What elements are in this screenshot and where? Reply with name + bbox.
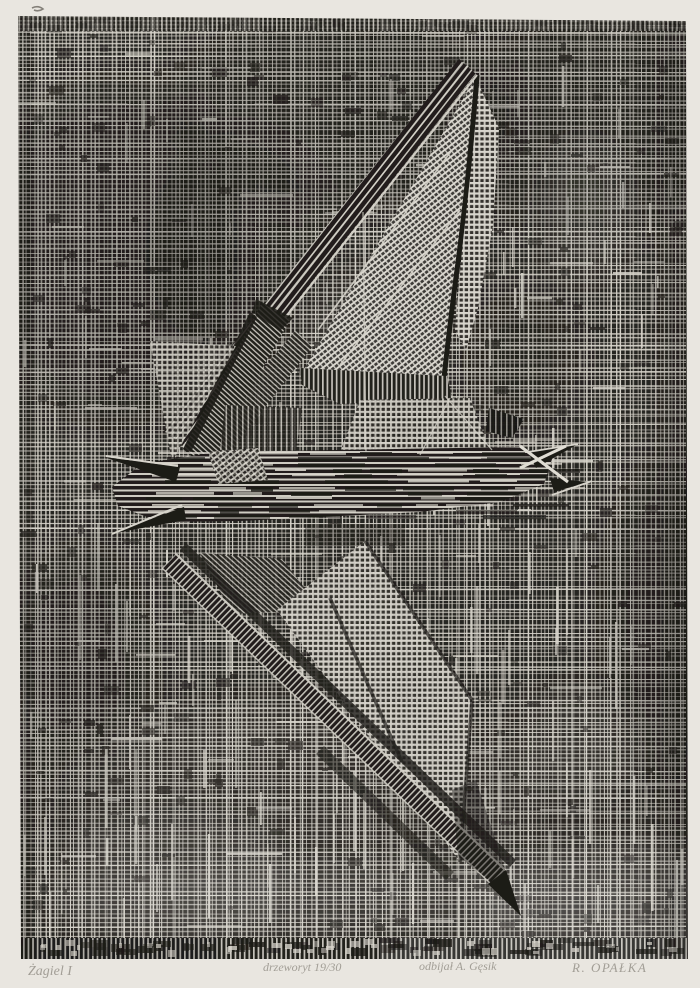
svg-text:R. OPAŁKA: R. OPAŁKA — [571, 960, 647, 975]
svg-text:Żagiel I: Żagiel I — [28, 963, 73, 979]
svg-text:odbijał A. Gęsik: odbijał A. Gęsik — [419, 959, 497, 973]
svg-text:drzeworyt 19/30: drzeworyt 19/30 — [263, 960, 341, 974]
